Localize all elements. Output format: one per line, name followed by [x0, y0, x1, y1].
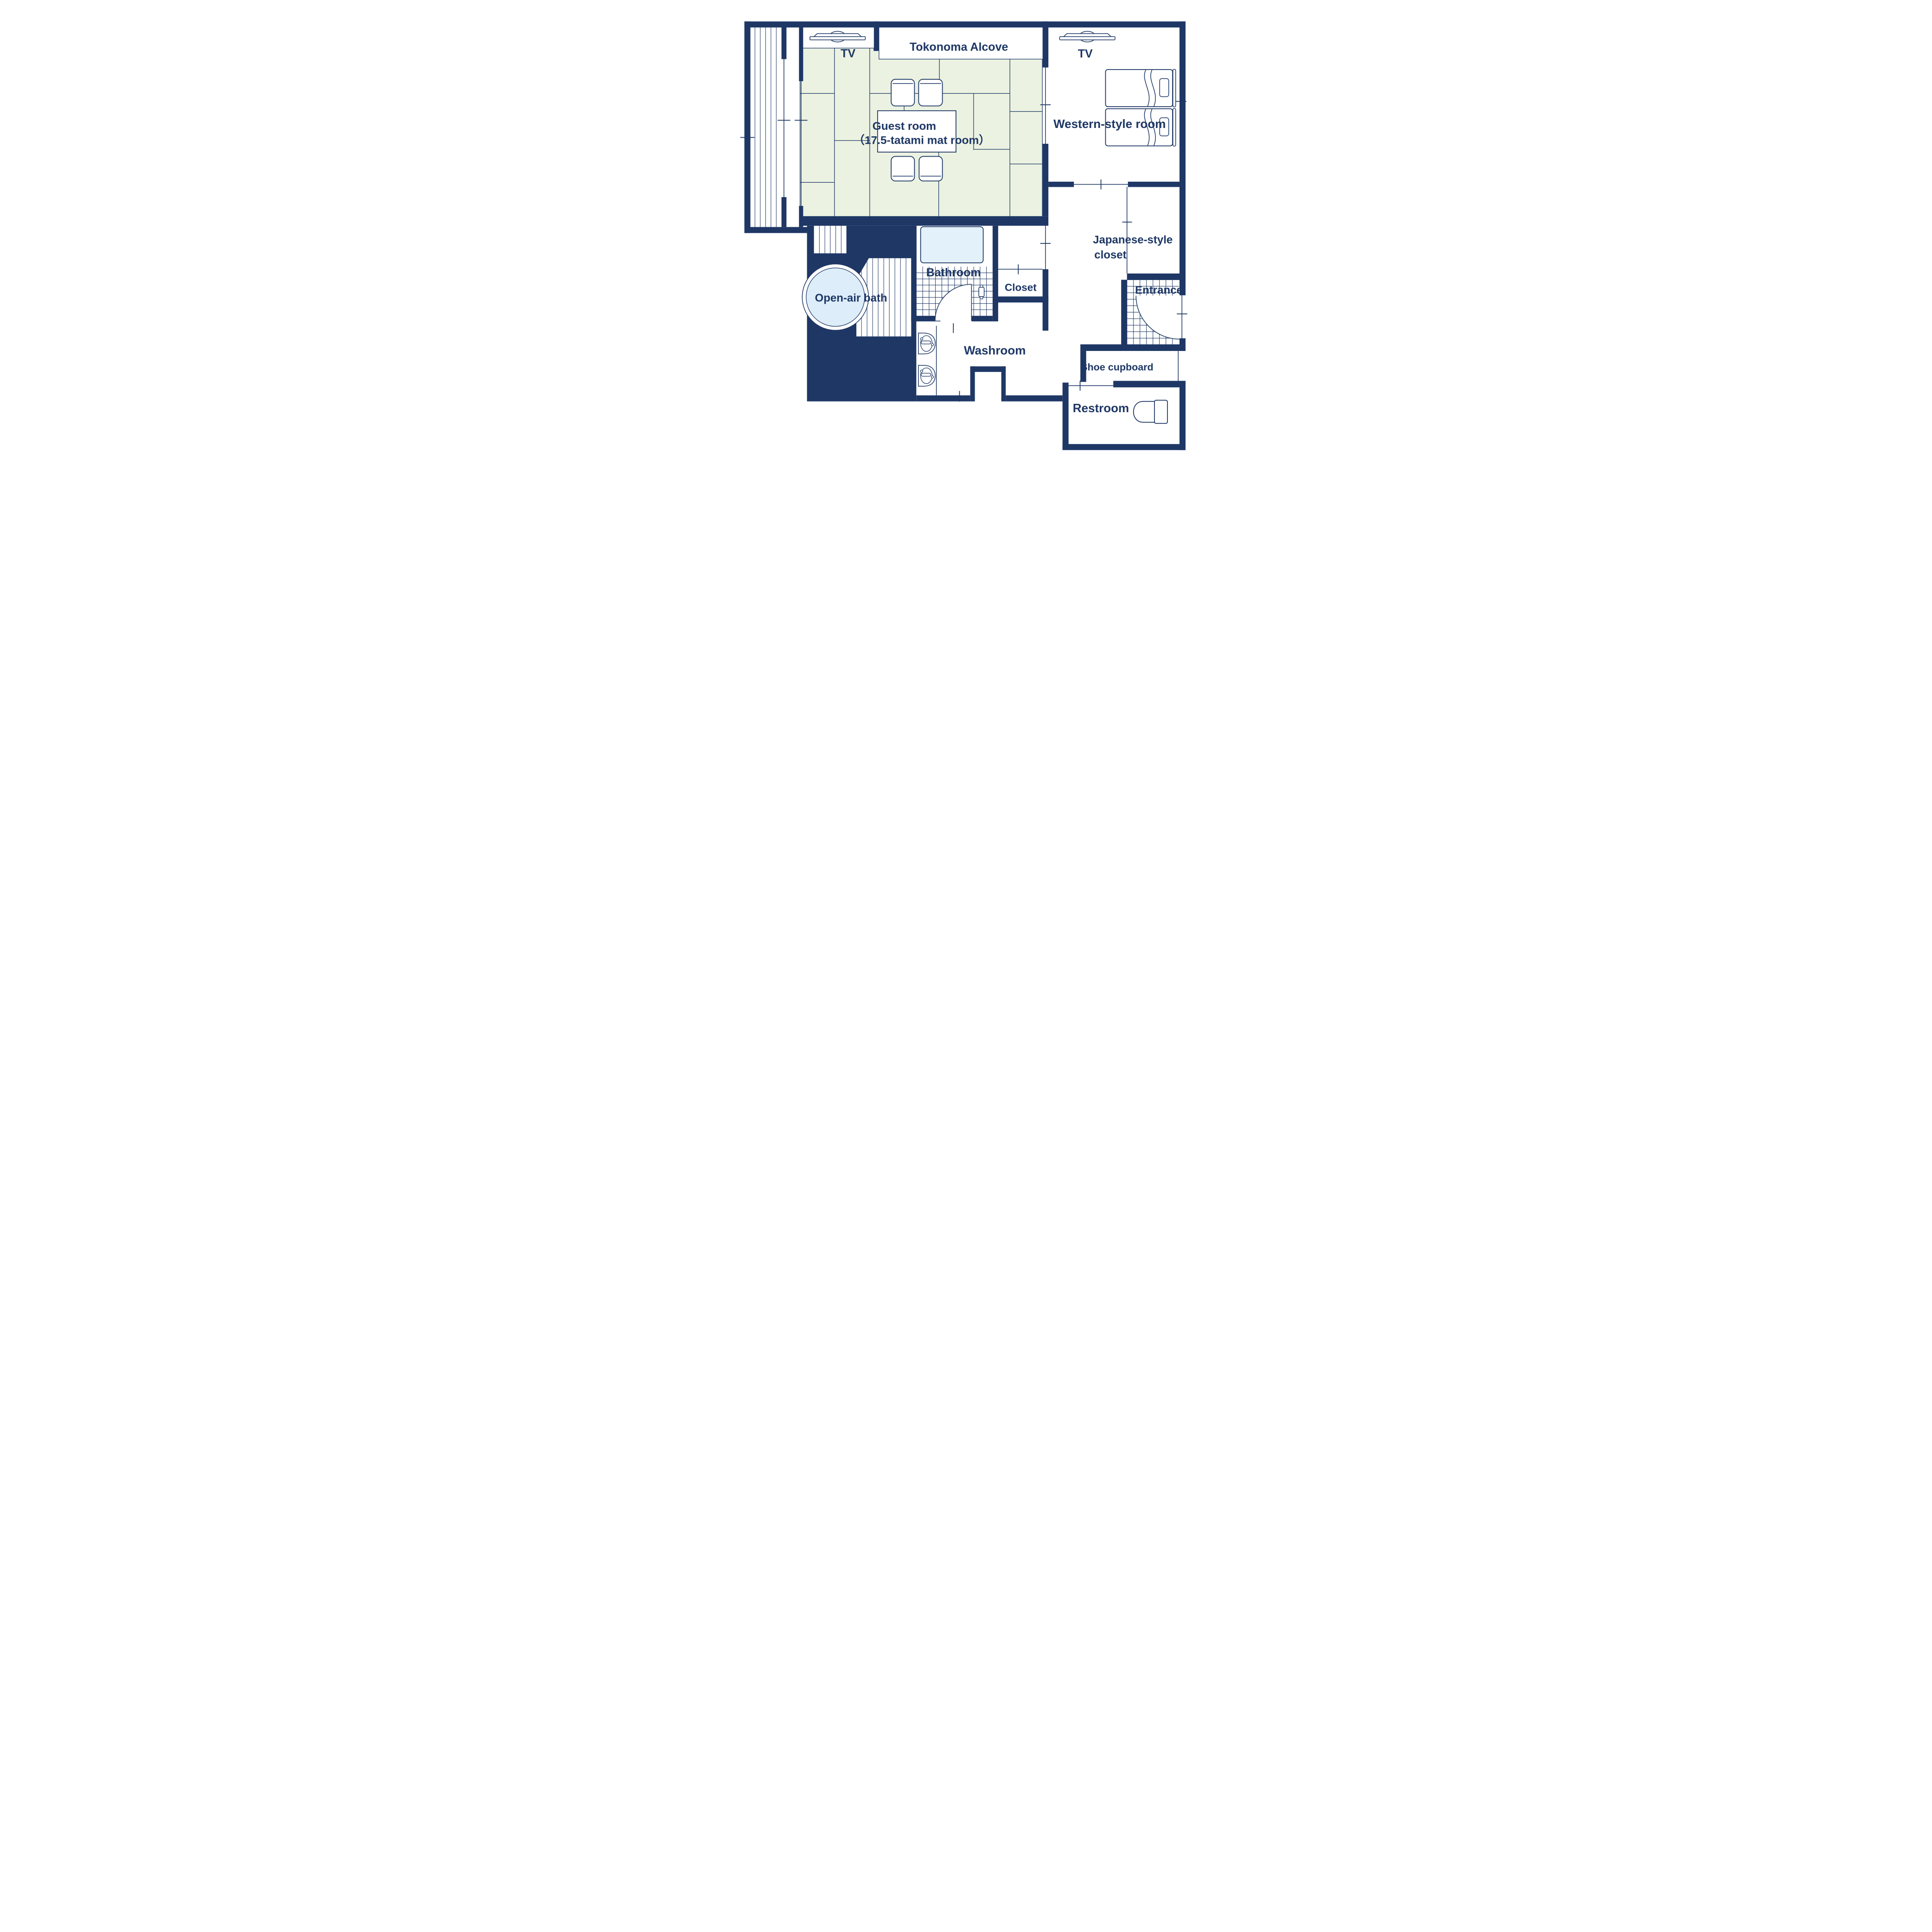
- closet-label: Closet: [1005, 282, 1037, 293]
- tv-label-guest: TV: [841, 47, 855, 60]
- restroom-label: Restroom: [1072, 401, 1129, 415]
- washbasin-icon: [918, 333, 935, 354]
- tv-label-western: TV: [1078, 47, 1092, 60]
- pillow-icon: [1160, 79, 1169, 97]
- washroom-label: Washroom: [963, 344, 1025, 357]
- open-air-bath-label: Open-air bath: [815, 292, 887, 305]
- bathroom-door: [935, 284, 971, 321]
- toilet-icon: [1133, 400, 1167, 423]
- washbasin-icon: [918, 365, 935, 386]
- japanese-closet-label-line1: Japanese-style: [1093, 234, 1173, 246]
- japanese-closet-label-line2: closet: [1094, 249, 1126, 261]
- floor-chair-icon: [891, 156, 914, 181]
- tv-icon: [1059, 32, 1115, 42]
- headboard: [1173, 108, 1175, 146]
- door-leaf: [1181, 295, 1182, 338]
- guest-room-label-line2: （17.5-tatami mat room）: [853, 134, 990, 147]
- twin-bed-icon: [1105, 70, 1175, 107]
- guest-room-label-line1: Guest room: [872, 120, 936, 133]
- western-room-label: Western-style room: [1053, 117, 1166, 131]
- headboard: [1173, 70, 1175, 107]
- entrance-door: [1136, 295, 1182, 339]
- shower-fixture-icon: [979, 285, 984, 299]
- floor-plan: Tokonoma Alcove TV TV Guest room （17.5-t…: [725, 0, 1208, 483]
- tv-icon: [810, 32, 865, 42]
- entrance-label: Entrance: [1135, 284, 1183, 297]
- tokonoma-label: Tokonoma Alcove: [909, 41, 1008, 54]
- bathtub-icon: [920, 227, 983, 263]
- door-swing-area: [1136, 296, 1180, 339]
- door-leaf: [971, 284, 972, 321]
- bathroom-label: Bathroom: [926, 266, 981, 279]
- shoe-cupboard-label: Shoe cupboard: [1081, 362, 1153, 373]
- floor-plan-page: Tokonoma Alcove TV TV Guest room （17.5-t…: [725, 0, 1208, 483]
- floor-chair-icon: [919, 156, 942, 181]
- door-swing-area: [935, 284, 971, 321]
